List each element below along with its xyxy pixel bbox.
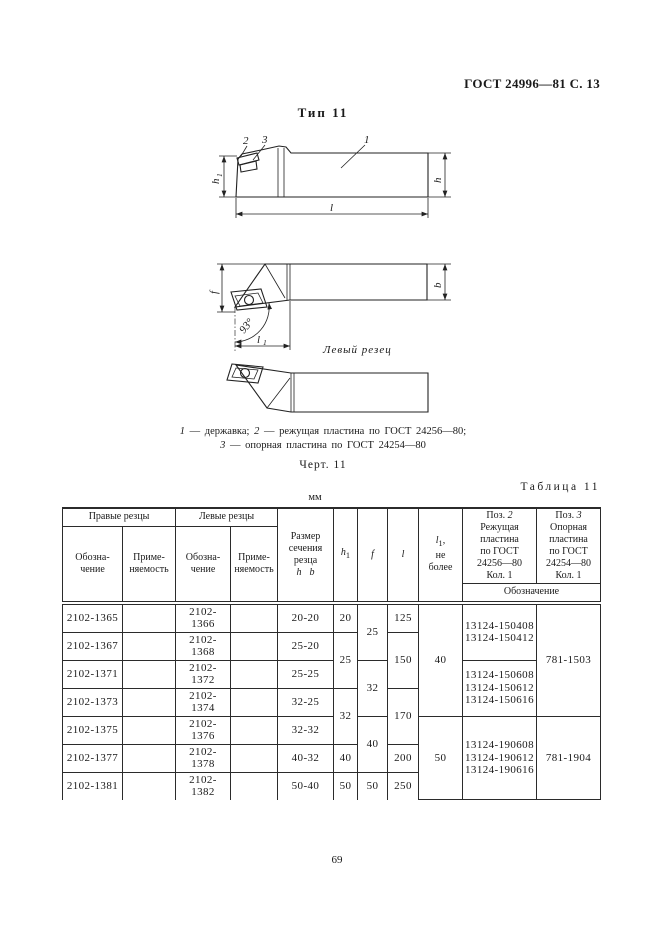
designation-subheader: Обозначение [463,584,601,603]
svg-text:l: l [257,334,260,346]
right-cutters-group-header: Правые резцы [63,508,176,526]
tool-body-outline [236,146,428,197]
size-cell: 25-25 [278,660,334,688]
dim-b-label: b [432,282,444,288]
support-plate-cell: 781-1904 [537,716,601,800]
l-cell: 150 [388,632,419,688]
left-usage-cell [231,688,278,716]
right-usage-cell [123,603,176,633]
right-designation-cell: 2102-1373 [63,688,123,716]
dim-l-label: l [330,202,333,214]
type-title: Тип 11 [140,105,506,121]
dim-l1-label: l 1 [257,334,267,347]
right-usage-cell [123,688,176,716]
size-cell: 32-32 [278,716,334,744]
table-caption: Таблица 11 [520,481,600,493]
l-cell: 200 [388,744,419,772]
size-cell: 32-25 [278,688,334,716]
f-cell: 40 [358,716,388,772]
units-label: мм [285,492,345,503]
right-designation-cell: 2102-1371 [63,660,123,688]
part-3-label: 3 [261,134,268,146]
l1-column-header: l1, не более [419,508,463,603]
figure-caption: 1 — державка; 2 — режущая пластина по ГО… [120,425,526,452]
pos2-column-header: Поз. 2 Режущая пластина по ГОСТ 24256—80… [463,508,537,584]
size-cell: 20-20 [278,603,334,633]
support-plate-shape [240,161,257,172]
left-designation-cell: 2102-1368 [176,632,231,660]
left-usage-header: Приме- няемость [231,526,278,603]
right-usage-cell [123,660,176,688]
svg-text:f: f [208,289,220,294]
right-designation-cell: 2102-1381 [63,772,123,800]
f-cell: 25 [358,603,388,661]
left-designation-cell: 2102-1376 [176,716,231,744]
side-view-drawing: h 1 h l 2 3 1 [195,128,465,223]
right-usage-cell [123,632,176,660]
size-cell: 25-20 [278,632,334,660]
left-usage-cell [231,632,278,660]
l1-cell: 50 [419,716,463,800]
cutting-plate-cell: 13124-190608 13124-190612 13124-190616 [463,716,537,800]
left-usage-cell [231,716,278,744]
f-cell: 50 [358,772,388,800]
left-usage-cell [231,660,278,688]
size-cell: 50-40 [278,772,334,800]
left-cutter-caption: Левый резец [323,344,423,356]
support-plate-cell: 781-1503 [537,603,601,717]
left-designation-cell: 2102-1378 [176,744,231,772]
dim-h-label: h [432,177,444,183]
figure-number: Черт. 11 [140,459,506,471]
left-cutter-drawing [150,358,440,420]
part-2-label: 2 [243,135,249,147]
page-number: 69 [317,854,357,866]
cutting-plate-cell: 13124-150608 13124-150612 13124-150616 [463,660,537,716]
svg-text:h: h [210,178,222,184]
left-designation-cell: 2102-1372 [176,660,231,688]
right-designation-cell: 2102-1375 [63,716,123,744]
l-cell: 170 [388,688,419,744]
f-cell: 32 [358,660,388,716]
l-cell: 250 [388,772,419,800]
h1-cell: 25 [334,632,358,688]
right-usage-cell [123,716,176,744]
h1-cell: 50 [334,772,358,800]
part-1-label: 1 [364,134,370,146]
svg-text:93°: 93° [237,316,256,336]
dim-angle-label: 93° [237,316,256,336]
left-usage-cell [231,744,278,772]
left-designation-cell: 2102-1374 [176,688,231,716]
right-designation-header: Обозна- чение [63,526,123,603]
h1-cell: 40 [334,744,358,772]
left-tool-outline [236,365,428,412]
dim-h1-label: h 1 [210,173,224,184]
l-cell: 125 [388,603,419,633]
left-designation-header: Обозна- чение [176,526,231,603]
h1-cell: 32 [334,688,358,744]
cutting-plate-cell: 13124-150408 13124-150412 [463,603,537,661]
svg-text:h: h [432,177,444,183]
insert-screw-hole [245,296,254,305]
right-usage-header: Приме- няемость [123,526,176,603]
left-usage-cell [231,603,278,633]
h1-column-header: h1 [334,508,358,603]
right-designation-cell: 2102-1367 [63,632,123,660]
document-page: ГОСТ 24996—81 С. 13 Тип 11 h 1 h l 2 [0,0,661,936]
l-column-header: l [388,508,419,603]
dimensions-table: Правые резцы Левые резцы Размер сечения … [62,507,601,800]
right-designation-cell: 2102-1377 [63,744,123,772]
size-column-header: Размер сечения резца hb [278,508,334,603]
svg-text:b: b [432,282,444,288]
right-designation-cell: 2102-1365 [63,603,123,633]
left-cutters-group-header: Левые резцы [176,508,278,526]
right-usage-cell [123,772,176,800]
left-designation-cell: 2102-1366 [176,603,231,633]
svg-text:1: 1 [263,338,267,347]
table-row: 2102-1365 2102-1366 20-20 20 25 125 40 1… [63,603,601,633]
l1-cell: 40 [419,603,463,717]
size-cell: 40-32 [278,744,334,772]
f-column-header: f [358,508,388,603]
h1-cell: 20 [334,603,358,633]
left-designation-cell: 2102-1382 [176,772,231,800]
svg-text:1: 1 [215,173,224,177]
left-usage-cell [231,772,278,800]
table-row: 2102-1371 2102-1372 25-25 32 13124-15060… [63,660,601,688]
right-usage-cell [123,744,176,772]
dim-f-label: f [208,289,220,294]
tool-plan-outline [235,264,427,307]
pos3-column-header: Поз. 3 Опорная пластина по ГОСТ 24254—80… [537,508,601,584]
standard-header: ГОСТ 24996—81 С. 13 [464,76,600,92]
table-row: 2102-1375 2102-1376 32-32 40 50 13124-19… [63,716,601,744]
